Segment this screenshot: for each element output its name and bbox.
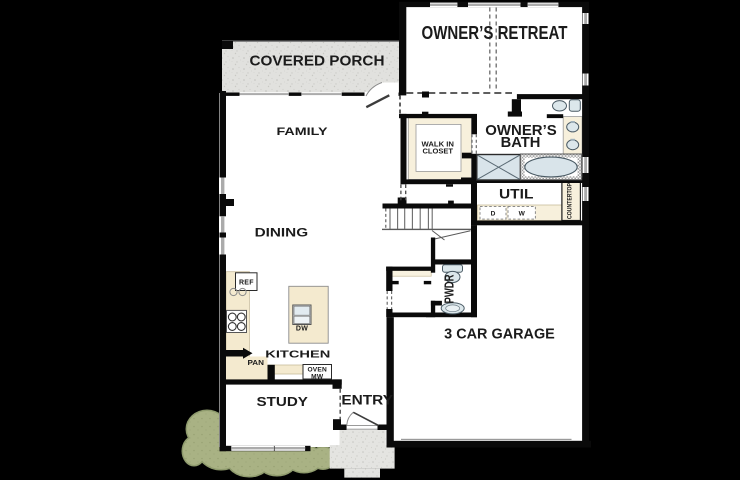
svg-text:COVERED PORCH: COVERED PORCH: [250, 52, 385, 69]
svg-text:CLOSET: CLOSET: [423, 148, 454, 155]
svg-text:OWNER’S RETREAT: OWNER’S RETREAT: [422, 23, 568, 43]
svg-text:DW: DW: [296, 326, 308, 333]
svg-text:DINING: DINING: [255, 225, 309, 239]
svg-text:PAN: PAN: [248, 358, 265, 367]
svg-text:KITCHEN: KITCHEN: [265, 350, 330, 361]
svg-text:UTIL: UTIL: [499, 186, 533, 201]
svg-text:W: W: [519, 210, 526, 217]
svg-text:STUDY: STUDY: [257, 394, 309, 409]
svg-text:3 CAR GARAGE: 3 CAR GARAGE: [444, 326, 555, 342]
svg-text:MW: MW: [311, 373, 324, 380]
svg-text:WALK IN: WALK IN: [422, 141, 455, 148]
svg-text:BATH: BATH: [501, 134, 541, 151]
svg-text:ENTRY: ENTRY: [341, 393, 393, 409]
svg-text:FAMILY: FAMILY: [277, 126, 329, 138]
svg-text:REF: REF: [239, 280, 254, 287]
svg-text:COUNTERTOP: COUNTERTOP: [567, 182, 574, 219]
svg-text:PWDR: PWDR: [442, 274, 457, 303]
svg-text:D: D: [491, 210, 496, 217]
